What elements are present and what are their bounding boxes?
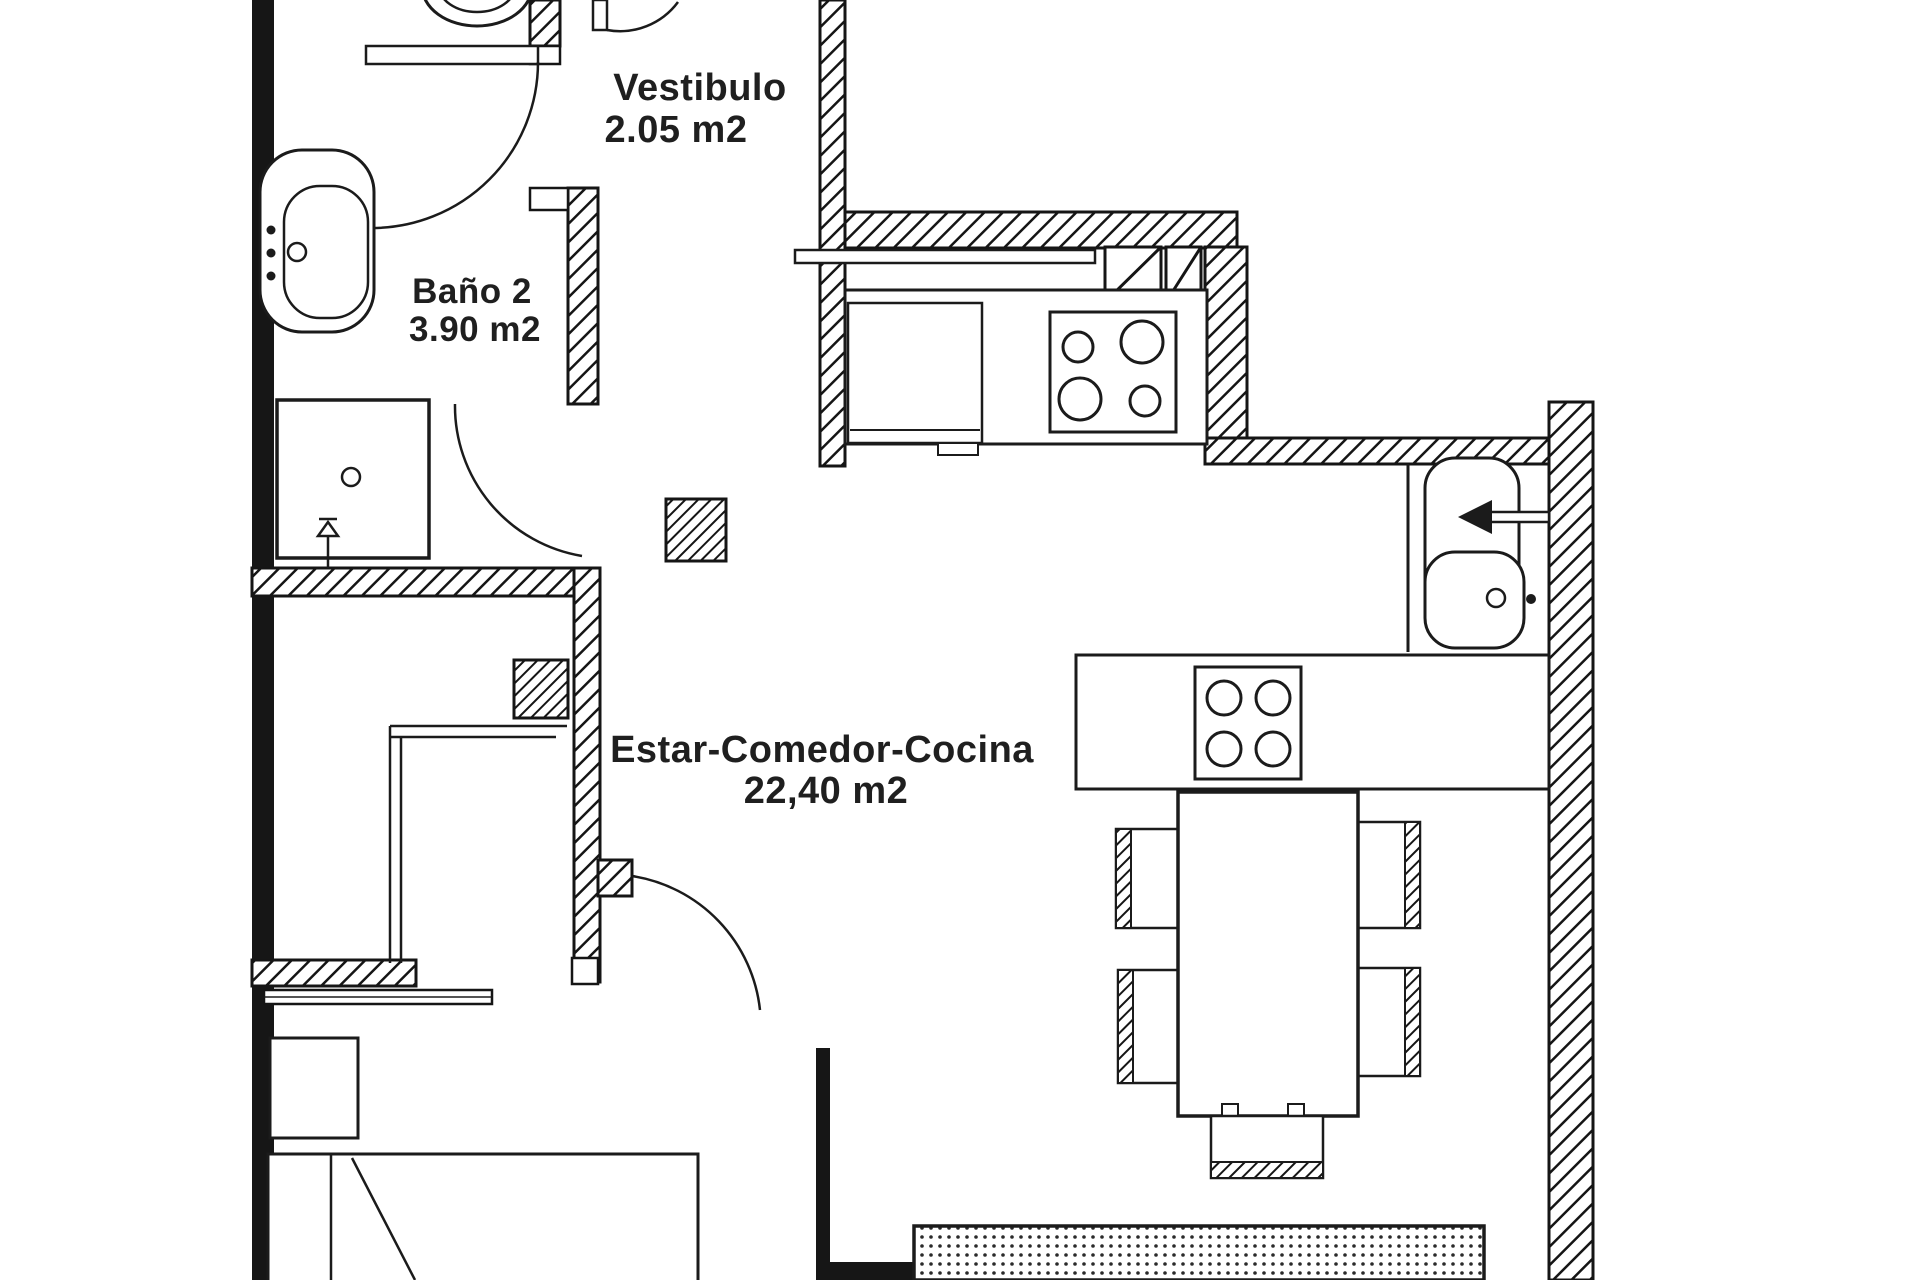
bedroom-door-stub bbox=[598, 860, 632, 896]
pillar bbox=[666, 499, 726, 561]
room-label-vestibulo: Vestibulo bbox=[613, 67, 786, 109]
wall-vestibule-kitchen bbox=[820, 0, 845, 466]
appliance bbox=[848, 303, 982, 443]
wall-bathroom-bottom bbox=[252, 568, 600, 596]
sink-dot bbox=[1526, 594, 1536, 604]
burner-small bbox=[1130, 386, 1160, 416]
entrance-door-arc bbox=[607, 2, 678, 31]
wall-bedroom-bottom bbox=[252, 960, 416, 986]
washbasin-tap-dot bbox=[267, 249, 276, 258]
nightstand bbox=[270, 1038, 358, 1138]
shower-drain bbox=[342, 468, 360, 486]
washbasin-drain bbox=[288, 243, 306, 261]
washbasin-tap-dot bbox=[267, 226, 276, 235]
room-label-estar: Estar-Comedor-Cocina bbox=[610, 729, 1034, 771]
room-label-bano2: Baño 2 bbox=[412, 272, 532, 311]
wall-living-left bbox=[816, 1048, 830, 1270]
appliance-tab bbox=[938, 443, 978, 455]
burner-small bbox=[1063, 332, 1093, 362]
chair-back bbox=[1405, 822, 1420, 928]
sink-drain bbox=[1487, 589, 1505, 607]
wardrobe bbox=[390, 726, 567, 963]
service-shaft-left bbox=[514, 660, 568, 718]
wall-bathroom-right bbox=[568, 188, 598, 404]
sink-basin-2 bbox=[1425, 552, 1524, 648]
water-arrow-shaft bbox=[1490, 512, 1549, 522]
peninsula-counter bbox=[1076, 655, 1549, 789]
bedroom-door-jamb bbox=[572, 958, 598, 984]
pass-through-bar bbox=[795, 250, 1095, 263]
dining-table bbox=[1178, 792, 1358, 1116]
outer-wall-right bbox=[1549, 402, 1593, 1280]
chair-back bbox=[1211, 1162, 1323, 1178]
wall-kitchen-to-right bbox=[1205, 438, 1591, 464]
wall-kitchen-top bbox=[845, 212, 1237, 248]
burner-large bbox=[1121, 321, 1163, 363]
floor-plan: Vestibulo 2.05 m2 Baño 2 3.90 m2 Estar-C… bbox=[0, 0, 1920, 1280]
entrance-door-leaf bbox=[593, 0, 607, 30]
hob-burner bbox=[1256, 681, 1290, 715]
chair-back bbox=[1116, 829, 1131, 928]
wall-kitchen-right bbox=[1205, 247, 1247, 441]
room-area-vestibulo: 2.05 m2 bbox=[605, 109, 748, 151]
bed bbox=[268, 1154, 698, 1280]
wall-top-stub bbox=[530, 0, 560, 46]
washbasin-tap-dot bbox=[267, 272, 276, 281]
wall-bedroom-living bbox=[574, 568, 600, 982]
bathroom-top-door-leaf bbox=[366, 46, 538, 64]
floor-plan-drawing: Vestibulo 2.05 m2 Baño 2 3.90 m2 Estar-C… bbox=[0, 0, 1920, 1280]
chair-back bbox=[1118, 970, 1133, 1083]
bedroom-door-arc bbox=[632, 876, 760, 1010]
hob-burner bbox=[1256, 732, 1290, 766]
burner-large bbox=[1059, 378, 1101, 420]
hob-burner bbox=[1207, 732, 1241, 766]
kitchen bbox=[795, 250, 1549, 789]
chair-back bbox=[1405, 968, 1420, 1076]
dining-set bbox=[1116, 792, 1420, 1178]
door-jamb-bathroom bbox=[530, 188, 568, 210]
rug bbox=[914, 1226, 1484, 1280]
walls bbox=[252, 0, 1593, 1280]
bathroom-side-door-arc bbox=[455, 404, 582, 556]
bathroom-top-door-arc bbox=[372, 62, 538, 228]
room-area-estar: 22,40 m2 bbox=[744, 770, 909, 812]
hob-burner bbox=[1207, 681, 1241, 715]
room-area-bano2: 3.90 m2 bbox=[409, 310, 541, 349]
